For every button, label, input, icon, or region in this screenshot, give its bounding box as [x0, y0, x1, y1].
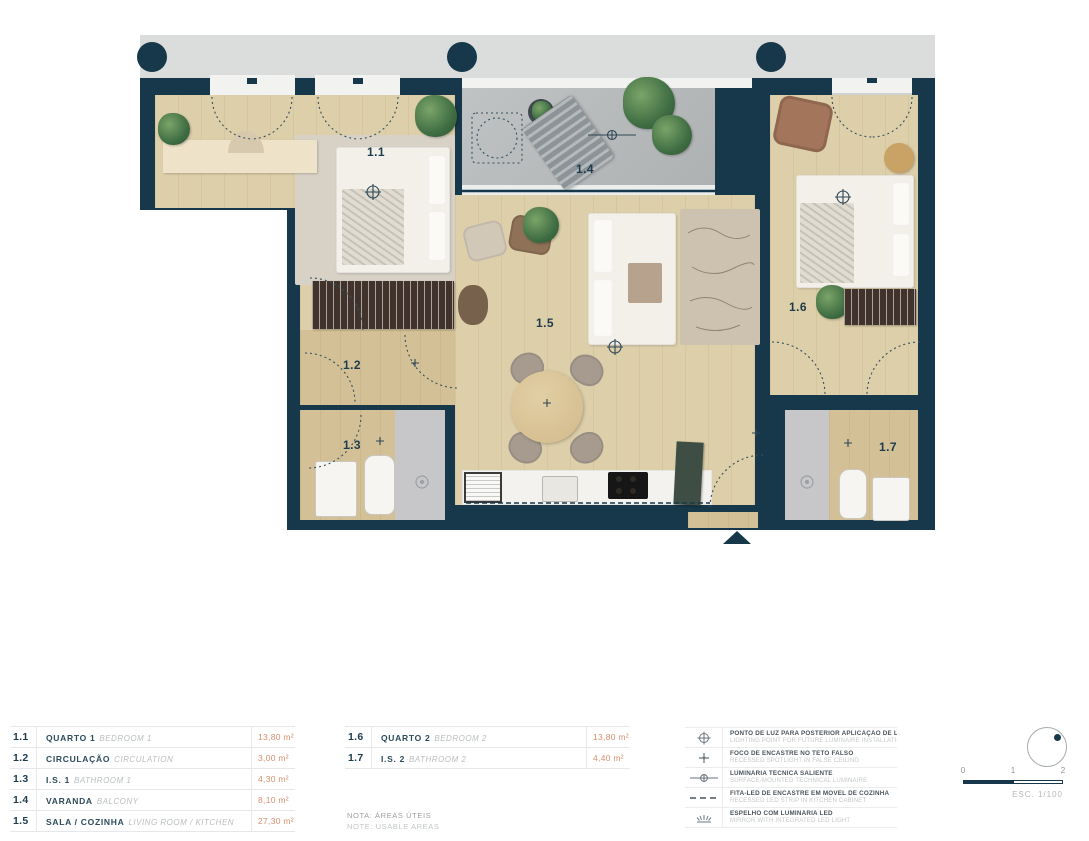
room-label-1-3: 1.3: [343, 438, 361, 452]
dresser: [844, 289, 916, 325]
room-number: 1.6: [345, 727, 372, 747]
recessed-spotlight-icon: [685, 748, 723, 767]
bed-1: [336, 147, 450, 273]
room-area: 4,30 m²: [251, 769, 295, 789]
bed-2: [796, 175, 914, 288]
plant: [652, 115, 692, 155]
window-handle: [867, 78, 877, 83]
wine-cabinet: [464, 472, 502, 503]
legend-title: LUMINÁRIA TÉCNICA SALIENTE: [730, 770, 897, 778]
light-point-icon: [685, 728, 723, 747]
lighting-legend: PONTO DE LUZ PARA POSTERIOR APLICAÇÃO DE…: [685, 727, 897, 828]
room-number: 1.1: [10, 727, 37, 747]
room-name: I.S. 1BATHROOM 1: [37, 770, 251, 788]
stove: [608, 472, 648, 499]
dining-table: [511, 371, 583, 443]
scale-tick-2: 2: [1061, 766, 1065, 775]
room-area: 13,80 m²: [251, 727, 295, 747]
room-area: 13,80 m²: [586, 727, 630, 747]
room-name: VARANDABALCONY: [37, 791, 251, 809]
entry-doormat: [688, 512, 758, 528]
legend-title: FITA-LED DE ENCASTRE EM MÓVEL DE COZINHA: [730, 790, 897, 798]
dresser: [312, 281, 454, 329]
kitchen-sink: [542, 476, 578, 502]
room-area: 3,00 m²: [251, 748, 295, 768]
scale-tick-0: 0: [961, 766, 965, 775]
area-table-right: 1.6 QUARTO 2BEDROOM 2 13,80 m² 1.7 I.S. …: [345, 726, 630, 769]
room-name: QUARTO 1BEDROOM 1: [37, 728, 251, 746]
room-label-1-4: 1.4: [576, 162, 594, 176]
table-row: 1.6 QUARTO 2BEDROOM 2 13,80 m²: [345, 727, 630, 748]
room-area: 4,40 m²: [586, 748, 630, 768]
scale-caption: ESC. 1/100: [988, 790, 1063, 799]
plant: [158, 113, 190, 145]
room-label-1-7: 1.7: [879, 440, 897, 454]
legend-subtitle: SURFACE-MOUNTED TECHNICAL LUMINAIRE: [730, 778, 897, 786]
armchair: [771, 94, 834, 154]
room-label-1-2: 1.2: [343, 358, 361, 372]
room-1-2-floor: [300, 330, 460, 405]
table-row: 1.7 I.S. 2BATHROOM 2 4,40 m²: [345, 748, 630, 769]
scale-bar-solid: [963, 780, 1013, 784]
note-pt: NOTA: ÁREAS ÚTEIS: [347, 811, 431, 820]
room-area: 27,30 m²: [251, 811, 295, 831]
legend-title: PONTO DE LUZ PARA POSTERIOR APLICAÇÃO DE…: [730, 730, 897, 738]
toilet: [839, 469, 867, 519]
legend-row: ESPELHO COM LUMINÁRIA LED MIRROR WITH IN…: [685, 808, 897, 828]
table-row: 1.4 VARANDABALCONY 8,10 m²: [10, 790, 295, 811]
table-row: 1.5 SALA / COZINHALIVING ROOM / KITCHEN …: [10, 811, 295, 832]
room-name: QUARTO 2BEDROOM 2: [372, 728, 586, 746]
table-row: 1.2 CIRCULAÇÃOCIRCULATION 3,00 m²: [10, 748, 295, 769]
floor-plan: 1.1 1.2 1.3 1.4 1.5 1.6 1.7: [140, 35, 935, 545]
toilet: [364, 455, 395, 515]
window-handle: [247, 78, 257, 84]
north-indicator: [1027, 727, 1067, 767]
legend-subtitle: RECESSED LED STRIP IN KITCHEN CABINET: [730, 798, 897, 806]
room-1-7-shower: [785, 410, 829, 520]
pouf: [458, 285, 488, 325]
room-name: CIRCULAÇÃOCIRCULATION: [37, 749, 251, 767]
sofa: [588, 213, 676, 345]
room-label-1-6: 1.6: [789, 300, 807, 314]
terrace-band: [140, 35, 935, 78]
legend-subtitle: LIGHTING POINT FOR FUTURE LUMINAIRE INST…: [730, 738, 897, 746]
sink: [872, 477, 910, 521]
legend-subtitle: RECESSED SPOTLIGHT IN FALSE CEILING: [730, 758, 897, 766]
scale-tick-1: 1: [1011, 766, 1015, 775]
room-number: 1.2: [10, 748, 37, 768]
legend-title: FOCO DE ENCASTRE NO TETO FALSO: [730, 750, 897, 758]
entry-arrow-icon: [723, 531, 751, 544]
balcony-opening: [462, 78, 752, 88]
table-row: 1.3 I.S. 1BATHROOM 1 4,30 m²: [10, 769, 295, 790]
room-area: 8,10 m²: [251, 790, 295, 810]
north-dot-icon: [1054, 734, 1061, 741]
rug: [680, 209, 760, 345]
side-table: [884, 143, 914, 173]
table-row: 1.1 QUARTO 1BEDROOM 1 13,80 m²: [10, 727, 295, 748]
legend-row: FOCO DE ENCASTRE NO TETO FALSO RECESSED …: [685, 748, 897, 768]
room-name: SALA / COZINHALIVING ROOM / KITCHEN: [37, 812, 251, 830]
plant: [523, 207, 559, 243]
room-label-1-1: 1.1: [367, 145, 385, 159]
scale-bar-open: [1013, 780, 1063, 784]
room-label-1-5: 1.5: [536, 316, 554, 330]
sink: [315, 461, 357, 517]
note-en: NOTE: USABLE AREAS: [347, 822, 440, 831]
legend-row: FITA-LED DE ENCASTRE EM MÓVEL DE COZINHA…: [685, 788, 897, 808]
entry-cabinet: [673, 441, 703, 505]
legend-row: LUMINÁRIA TÉCNICA SALIENTE SURFACE-MOUNT…: [685, 768, 897, 788]
legend-row: PONTO DE LUZ PARA POSTERIOR APLICAÇÃO DE…: [685, 728, 897, 748]
plant: [415, 95, 457, 137]
legend-subtitle: MIRROR WITH INTEGRATED LED LIGHT: [730, 818, 897, 826]
room-number: 1.5: [10, 811, 37, 831]
column: [137, 42, 167, 72]
room-number: 1.4: [10, 790, 37, 810]
technical-luminaire-icon: [685, 768, 723, 787]
mirror-led-icon: [685, 808, 723, 827]
room-1-3-shower: [395, 410, 445, 520]
column: [447, 42, 477, 72]
led-strip-icon: [685, 788, 723, 807]
room-number: 1.7: [345, 748, 372, 768]
room-name: I.S. 2BATHROOM 2: [372, 749, 586, 767]
area-table-left: 1.1 QUARTO 1BEDROOM 1 13,80 m² 1.2 CIRCU…: [10, 726, 295, 832]
window-handle: [353, 78, 363, 84]
legend-title: ESPELHO COM LUMINÁRIA LED: [730, 810, 897, 818]
column: [756, 42, 786, 72]
room-number: 1.3: [10, 769, 37, 789]
